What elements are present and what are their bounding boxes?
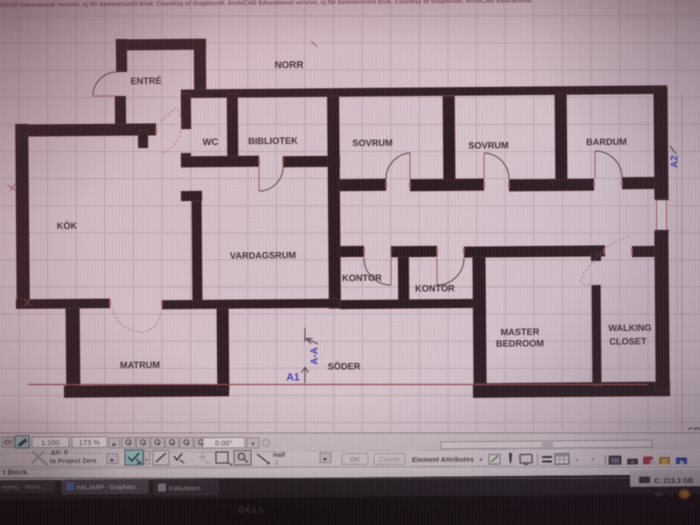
svg-text:ENTRÉ: ENTRÉ: [130, 75, 161, 86]
svg-text:0.00°: 0.00°: [215, 439, 233, 447]
svg-text:WALKING: WALKING: [608, 323, 651, 333]
svg-text:⌄: ⌄: [274, 442, 278, 448]
svg-text:▶: ▶: [113, 442, 117, 448]
svg-text:A2: A2: [669, 155, 680, 168]
svg-text:KÖK: KÖK: [57, 221, 78, 231]
svg-text:DELL: DELL: [238, 504, 265, 514]
svg-text:▴: ▴: [576, 457, 579, 463]
svg-text:MATRUM: MATRUM: [120, 360, 161, 370]
svg-text:▶: ▶: [324, 457, 328, 463]
svg-text:WC: WC: [203, 136, 219, 147]
svg-text:1:100: 1:100: [41, 440, 60, 447]
svg-text:VARDAGSRUM: VARDAGSRUM: [230, 250, 297, 261]
svg-text:+: +: [251, 441, 255, 448]
svg-text:SÖDER: SÖDER: [328, 361, 361, 371]
svg-text:KONTOR: KONTOR: [342, 273, 382, 283]
svg-text:BEDROOM: BEDROOM: [496, 338, 544, 348]
svg-text:KONTOR: KONTOR: [415, 283, 455, 293]
svg-text:Cancel: Cancel: [379, 456, 400, 463]
svg-text:CLOSET: CLOSET: [609, 336, 647, 346]
svg-text:SOVRUM: SOVRUM: [352, 138, 393, 148]
svg-text:MASTER: MASTER: [501, 327, 540, 337]
svg-text:ΔX: 0: ΔX: 0: [51, 449, 68, 456]
svg-text:A1: A1: [286, 371, 300, 383]
svg-text:▶: ▶: [111, 457, 115, 463]
svg-text:hALJARP - Graphiso...: hALJARP - Graphiso...: [77, 484, 141, 492]
svg-text:t Block.: t Block.: [3, 469, 29, 476]
svg-text:to Project Zero: to Project Zero: [50, 458, 97, 465]
svg-text:Element Attributes: Element Attributes: [412, 456, 474, 464]
svg-text:▾: ▾: [592, 457, 595, 463]
svg-text:SOVRUM: SOVRUM: [468, 140, 509, 150]
svg-text:ment1 - Micro...: ment1 - Micro...: [2, 485, 46, 491]
svg-text:A-A: A-A: [309, 347, 320, 365]
svg-text:SV: SV: [655, 492, 663, 498]
svg-text:Half: Half: [273, 452, 286, 459]
svg-text:2: 2: [275, 460, 278, 466]
svg-text:BIBLIOTEK: BIBLIOTEK: [248, 136, 298, 146]
svg-text:C: 213.3 GB: C: 213.3 GB: [654, 478, 693, 485]
svg-text:BARDUM: BARDUM: [586, 137, 627, 147]
svg-text:▾: ▾: [480, 457, 483, 463]
svg-text:173 %: 173 %: [79, 440, 100, 447]
svg-text:OK: OK: [350, 456, 360, 463]
svg-text:Kalkylatorn: Kalkylatorn: [169, 485, 201, 492]
svg-text:NORR: NORR: [275, 60, 304, 71]
